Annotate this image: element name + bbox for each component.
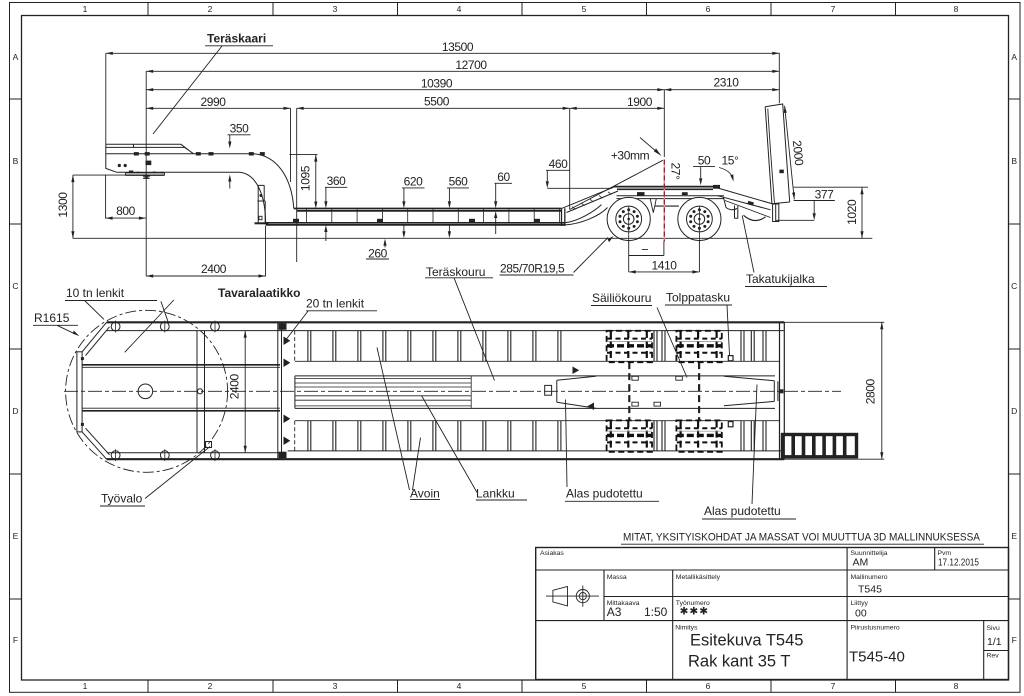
svg-text:1020: 1020 bbox=[845, 199, 859, 225]
svg-text:E: E bbox=[1011, 531, 1017, 541]
svg-text:10390: 10390 bbox=[421, 77, 453, 91]
svg-text:620: 620 bbox=[404, 175, 424, 189]
svg-text:Säiliökouru: Säiliökouru bbox=[592, 291, 651, 305]
svg-text:A: A bbox=[1011, 52, 1017, 62]
svg-text:6: 6 bbox=[706, 4, 711, 14]
svg-text:Metallikäsittely: Metallikäsittely bbox=[676, 574, 721, 581]
svg-text:C: C bbox=[1011, 281, 1017, 291]
svg-text:3: 3 bbox=[333, 681, 338, 691]
svg-text:800: 800 bbox=[116, 204, 136, 218]
svg-text:15°: 15° bbox=[722, 153, 740, 167]
svg-text:MITAT, YKSITYISKOHDAT JA MASSA: MITAT, YKSITYISKOHDAT JA MASSAT VOI MUUT… bbox=[623, 532, 981, 544]
svg-text:12700: 12700 bbox=[455, 58, 487, 72]
svg-text:6: 6 bbox=[706, 681, 711, 691]
svg-text:D: D bbox=[12, 406, 18, 416]
svg-text:2: 2 bbox=[208, 4, 213, 14]
svg-text:2400: 2400 bbox=[228, 373, 242, 399]
svg-text:Alas pudotettu: Alas pudotettu bbox=[704, 504, 781, 518]
svg-text:17.12.2015: 17.12.2015 bbox=[938, 557, 979, 569]
svg-text:7: 7 bbox=[831, 4, 836, 14]
svg-text:3: 3 bbox=[333, 4, 338, 14]
svg-text:1/1: 1/1 bbox=[987, 636, 1002, 648]
svg-text:Lankku: Lankku bbox=[476, 487, 515, 501]
svg-text:1:50: 1:50 bbox=[644, 605, 668, 619]
svg-text:+30mm: +30mm bbox=[611, 149, 650, 163]
svg-text:R1615: R1615 bbox=[34, 311, 70, 325]
svg-text:Rev: Rev bbox=[987, 653, 1000, 660]
svg-text:360: 360 bbox=[327, 174, 347, 188]
svg-text:F: F bbox=[1012, 635, 1017, 645]
svg-text:T545: T545 bbox=[858, 584, 882, 596]
svg-text:Rak kant 35 T: Rak kant 35 T bbox=[688, 653, 790, 671]
svg-text:350: 350 bbox=[230, 121, 250, 135]
svg-text:377: 377 bbox=[815, 187, 835, 201]
svg-text:E: E bbox=[13, 531, 19, 541]
svg-text:Takatukijalka: Takatukijalka bbox=[746, 272, 815, 286]
svg-text:60: 60 bbox=[497, 170, 510, 184]
svg-text:4: 4 bbox=[457, 681, 462, 691]
svg-text:Mallinumero: Mallinumero bbox=[851, 574, 888, 581]
svg-text:Liittyy: Liittyy bbox=[851, 600, 869, 607]
svg-text:F: F bbox=[13, 635, 18, 645]
svg-text:Esitekuva T545: Esitekuva T545 bbox=[690, 632, 803, 650]
svg-text:✱✱✱: ✱✱✱ bbox=[680, 606, 709, 618]
svg-text:10 tn lenkit: 10 tn lenkit bbox=[66, 286, 125, 300]
svg-text:Avoin: Avoin bbox=[410, 487, 440, 501]
svg-text:260: 260 bbox=[368, 247, 388, 261]
svg-text:2000: 2000 bbox=[790, 140, 807, 167]
svg-text:D: D bbox=[1011, 406, 1017, 416]
svg-text:2800: 2800 bbox=[864, 378, 878, 404]
svg-text:2400: 2400 bbox=[201, 262, 227, 276]
svg-text:460: 460 bbox=[549, 157, 569, 171]
svg-text:00: 00 bbox=[855, 608, 867, 620]
svg-text:27°: 27° bbox=[669, 163, 683, 181]
svg-text:1900: 1900 bbox=[627, 95, 653, 109]
svg-text:2990: 2990 bbox=[200, 95, 226, 109]
svg-text:20 tn lenkit: 20 tn lenkit bbox=[306, 297, 365, 311]
svg-text:7: 7 bbox=[831, 681, 836, 691]
svg-text:B: B bbox=[13, 156, 19, 166]
svg-text:Massa: Massa bbox=[607, 574, 627, 581]
svg-text:Teräskaari: Teräskaari bbox=[207, 32, 266, 46]
svg-text:B: B bbox=[1011, 156, 1017, 166]
svg-text:5500: 5500 bbox=[424, 95, 450, 109]
svg-text:8: 8 bbox=[954, 4, 959, 14]
svg-text:C: C bbox=[12, 281, 18, 291]
svg-text:285/70R19,5: 285/70R19,5 bbox=[500, 262, 565, 276]
svg-text:A3: A3 bbox=[607, 605, 622, 619]
svg-text:5: 5 bbox=[582, 681, 587, 691]
svg-text:5: 5 bbox=[582, 4, 587, 14]
svg-text:1300: 1300 bbox=[56, 192, 70, 218]
svg-text:4: 4 bbox=[457, 4, 462, 14]
svg-text:AM: AM bbox=[853, 557, 869, 569]
svg-text:T545-40: T545-40 bbox=[849, 649, 905, 666]
svg-text:1: 1 bbox=[83, 4, 88, 14]
svg-text:8: 8 bbox=[954, 681, 959, 691]
svg-text:Teräskouru: Teräskouru bbox=[426, 265, 485, 279]
svg-text:A: A bbox=[13, 52, 19, 62]
svg-text:Tavaralaatikko: Tavaralaatikko bbox=[218, 286, 301, 300]
svg-text:Alas pudotettu: Alas pudotettu bbox=[566, 487, 643, 501]
svg-text:Asiakas: Asiakas bbox=[540, 550, 564, 557]
svg-text:2310: 2310 bbox=[713, 76, 739, 90]
svg-text:50: 50 bbox=[698, 153, 711, 167]
svg-text:Työvalo: Työvalo bbox=[101, 492, 143, 506]
svg-text:560: 560 bbox=[449, 175, 469, 189]
svg-text:1095: 1095 bbox=[299, 165, 313, 191]
svg-text:1: 1 bbox=[83, 681, 88, 691]
svg-text:Sivu: Sivu bbox=[987, 625, 1000, 632]
svg-text:Tolppatasku: Tolppatasku bbox=[666, 291, 730, 305]
svg-text:1410: 1410 bbox=[651, 258, 677, 272]
svg-text:Nimitys: Nimitys bbox=[675, 625, 698, 632]
svg-text:2: 2 bbox=[208, 681, 213, 691]
svg-text:13500: 13500 bbox=[442, 40, 474, 54]
svg-text:Piirustusnumero: Piirustusnumero bbox=[851, 625, 900, 632]
